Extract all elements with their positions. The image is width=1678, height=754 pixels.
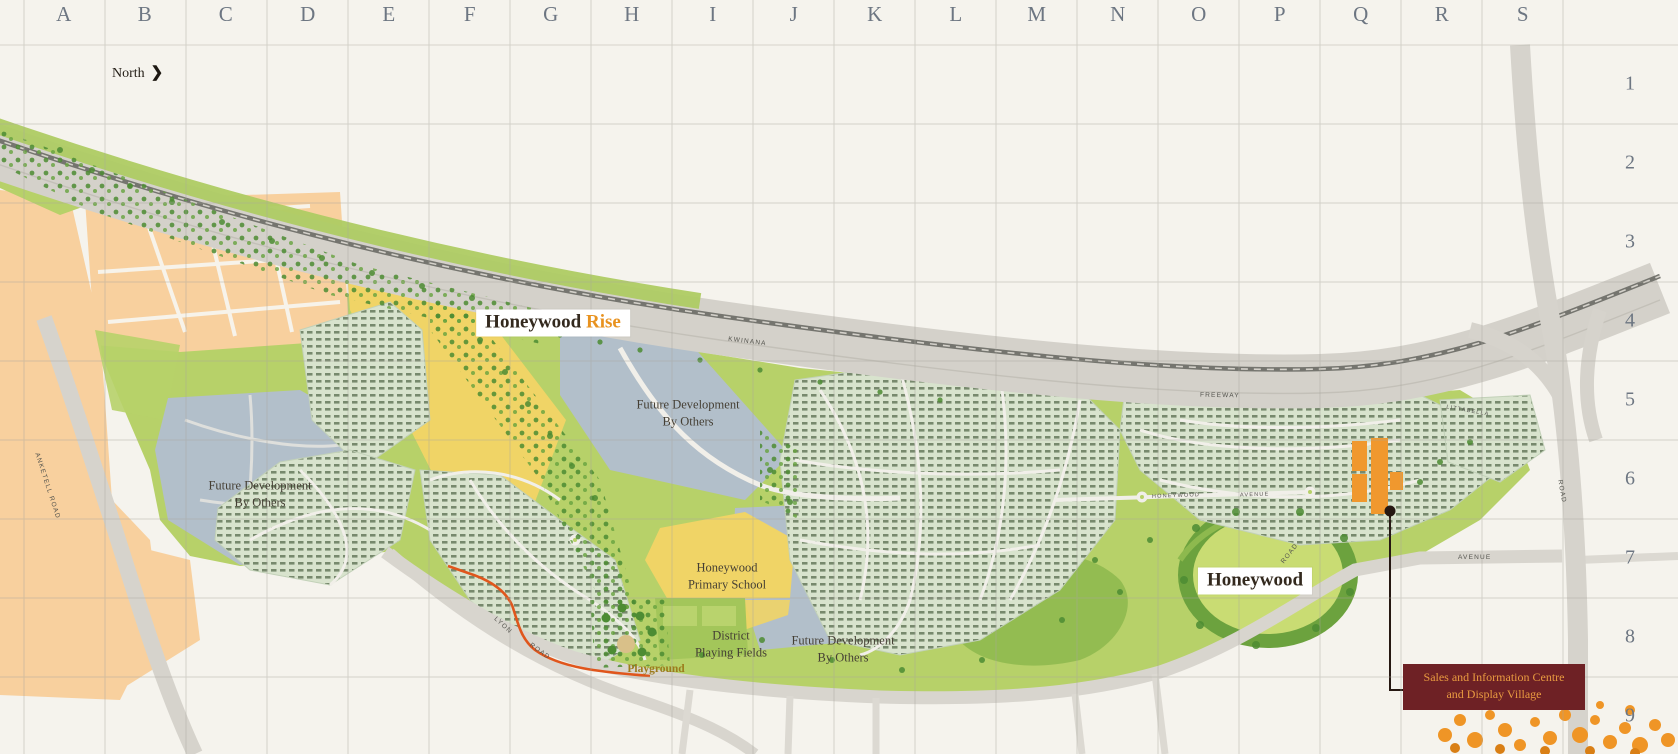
road-label-honeywood-avenue-2: AVENUE — [1240, 491, 1270, 498]
road-label-freeway: FREEWAY — [1200, 392, 1240, 400]
grid-column-label: E — [382, 2, 395, 27]
grid-column-label: F — [464, 2, 476, 27]
grid-row-label: 3 — [1625, 231, 1635, 254]
grid-column-label: R — [1435, 2, 1450, 27]
north-label: North — [112, 66, 145, 81]
north-indicator: North❯ — [112, 63, 163, 82]
honeywood-rise-title: Honeywood Rise — [476, 310, 630, 337]
future-development-label-central: Future Development By Others — [636, 397, 739, 430]
future-development-label-south: Future Development By Others — [791, 633, 894, 666]
primary-school-label: Honeywood Primary School — [688, 560, 766, 593]
grid-column-label: H — [624, 2, 640, 27]
grid-row-label: 7 — [1625, 547, 1635, 570]
grid-column-label: G — [543, 2, 559, 27]
grid-column-label: J — [790, 2, 799, 27]
sales-centre-callout: Sales and Information Centre and Display… — [1403, 664, 1585, 710]
grid-column-label: I — [709, 2, 717, 27]
grid-column-label: N — [1110, 2, 1126, 27]
masterplan-map: A B C D E F G H I J K L M N O P Q R S 1 … — [0, 0, 1678, 754]
grid-column-label: L — [949, 2, 962, 27]
grid-column-label: M — [1027, 2, 1046, 27]
honeywood-title: Honeywood — [1198, 568, 1312, 595]
grid-column-label: Q — [1353, 2, 1369, 27]
sales-centre-callout-line1: Sales and Information Centre — [1407, 669, 1581, 686]
playground-label: Playground — [627, 663, 684, 675]
grid-row-label: 1 — [1625, 73, 1635, 96]
sales-centre-marker — [1385, 506, 1396, 517]
grid-row-label: 6 — [1625, 468, 1635, 491]
grid-column-label: K — [867, 2, 883, 27]
future-development-label-west: Future Development By Others — [208, 478, 311, 511]
honeywood-rise-word1: Honeywood — [485, 312, 581, 333]
grid-row-label: 4 — [1625, 310, 1635, 333]
road-label-avenue: AVENUE — [1458, 554, 1491, 561]
grid-column-label: D — [300, 2, 316, 27]
grid-row-label: 5 — [1625, 389, 1635, 412]
grid-row-label: 2 — [1625, 152, 1635, 175]
honeywood-rise-word2: Rise — [586, 312, 621, 333]
grid-column-label: B — [138, 2, 153, 27]
sales-centre-callout-line2: and Display Village — [1407, 686, 1581, 703]
grid-row-label: 9 — [1625, 705, 1635, 728]
grid-row-label: 8 — [1625, 626, 1635, 649]
grid-column-label: C — [219, 2, 234, 27]
playing-fields-label: District Playing Fields — [695, 628, 767, 661]
north-arrow-icon: ❯ — [151, 65, 164, 81]
grid-column-label: O — [1191, 2, 1207, 27]
grid-column-label: P — [1274, 2, 1286, 27]
grid-column-label: A — [56, 2, 72, 27]
grid-column-label: S — [1517, 2, 1529, 27]
